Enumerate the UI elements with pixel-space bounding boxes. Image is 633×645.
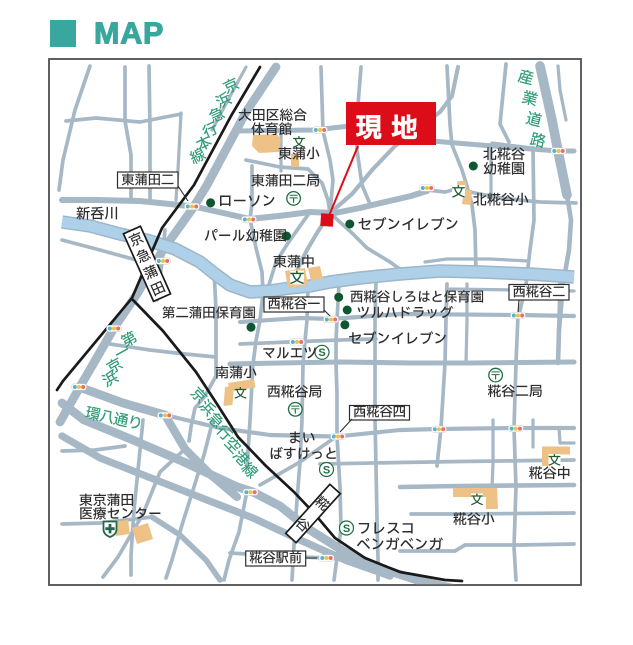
svg-text:S: S xyxy=(343,523,350,535)
svg-text:S: S xyxy=(323,464,330,476)
svg-text:MAP: MAP xyxy=(94,17,164,51)
svg-text:S: S xyxy=(318,347,325,359)
